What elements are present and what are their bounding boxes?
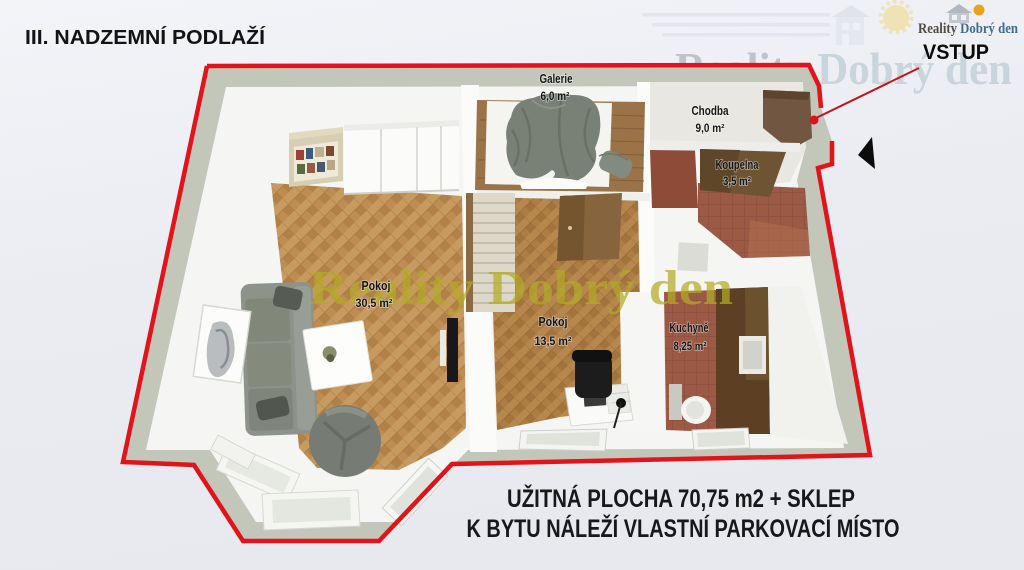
svg-text:3,5 m²: 3,5 m² bbox=[723, 176, 751, 188]
svg-text:III. NADZEMNÍ PODLAŽÍ: III. NADZEMNÍ PODLAŽÍ bbox=[25, 25, 265, 49]
svg-text:VSTUP: VSTUP bbox=[923, 41, 989, 64]
svg-text:Reality Dobrý den: Reality Dobrý den bbox=[918, 21, 1018, 37]
svg-text:Koupelna: Koupelna bbox=[716, 158, 760, 172]
svg-text:Kuchyně: Kuchyně bbox=[670, 321, 709, 335]
svg-text:K BYTU NÁLEŽÍ VLASTNÍ PARKOVAC: K BYTU NÁLEŽÍ VLASTNÍ PARKOVACÍ MÍSTO bbox=[467, 513, 900, 543]
svg-text:Pokoj: Pokoj bbox=[539, 315, 568, 329]
svg-text:9,0 m²: 9,0 m² bbox=[696, 123, 725, 135]
svg-text:8,25 m²: 8,25 m² bbox=[674, 341, 707, 353]
svg-text:UŽITNÁ PLOCHA 70,75 m2 + SKLEP: UŽITNÁ PLOCHA 70,75 m2 + SKLEP bbox=[507, 483, 855, 513]
svg-text:6,0 m²: 6,0 m² bbox=[541, 91, 570, 103]
svg-text:13,5 m²: 13,5 m² bbox=[535, 336, 572, 348]
svg-text:Pokoj: Pokoj bbox=[362, 279, 391, 293]
svg-text:Chodba: Chodba bbox=[692, 104, 730, 118]
svg-text:30,5 m²: 30,5 m² bbox=[356, 298, 393, 310]
svg-text:Galerie: Galerie bbox=[540, 72, 573, 86]
